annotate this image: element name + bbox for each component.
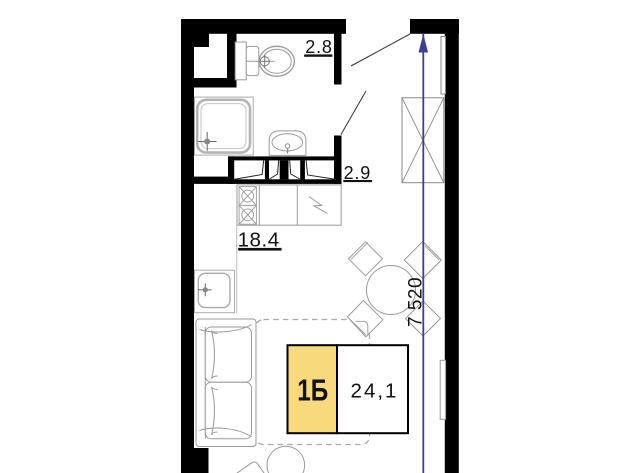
svg-text:24,1: 24,1 (351, 379, 399, 402)
svg-text:2.8: 2.8 (305, 37, 332, 57)
svg-text:7 520: 7 520 (405, 277, 426, 327)
svg-text:1Б: 1Б (297, 373, 328, 408)
